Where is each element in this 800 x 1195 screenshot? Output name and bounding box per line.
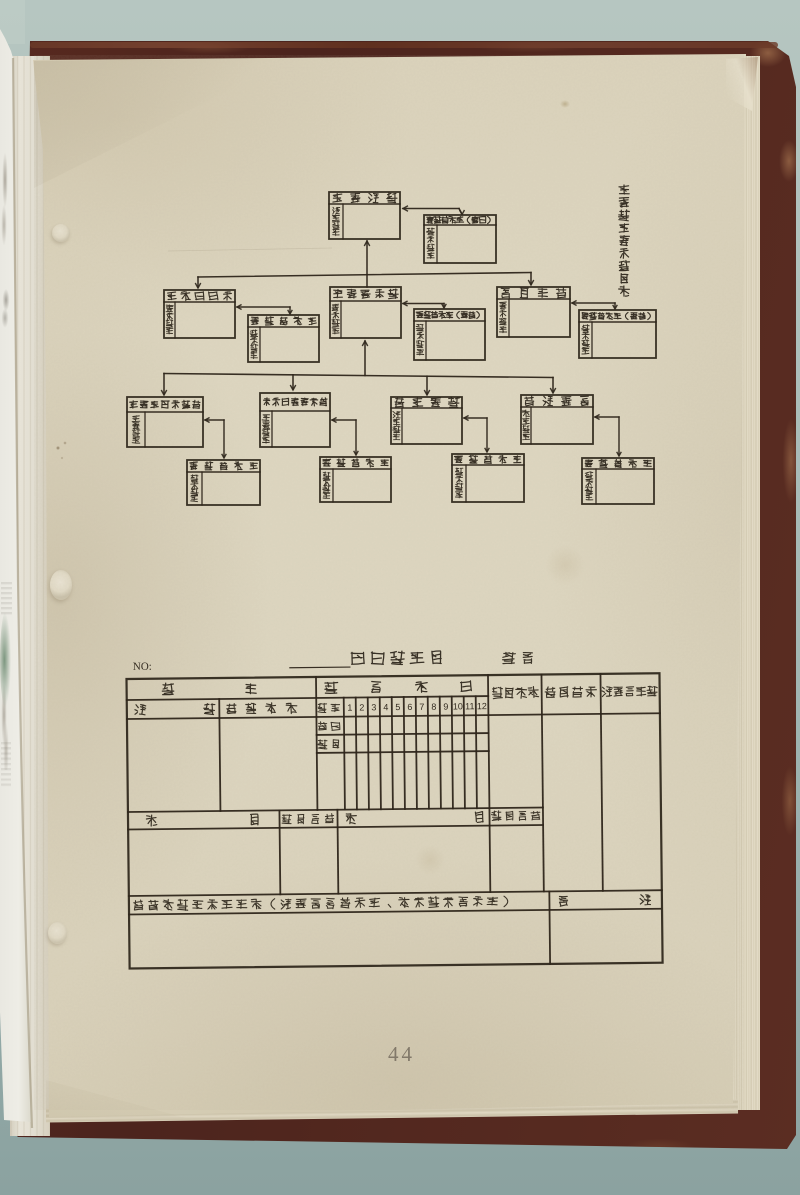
svg-text:11: 11 — [465, 701, 474, 711]
svg-text:7: 7 — [419, 702, 424, 712]
svg-text:5: 5 — [395, 702, 400, 712]
svg-text:9: 9 — [443, 702, 448, 712]
svg-text:6: 6 — [407, 702, 412, 712]
svg-text:1: 1 — [347, 703, 352, 713]
svg-text:12: 12 — [477, 701, 487, 711]
svg-text:NO:: NO: — [133, 661, 152, 673]
svg-text:4: 4 — [383, 702, 388, 712]
svg-text:10: 10 — [453, 701, 463, 711]
svg-text:44: 44 — [388, 1042, 415, 1066]
svg-text:2: 2 — [359, 702, 364, 712]
svg-text:8: 8 — [431, 702, 436, 712]
svg-text:3: 3 — [371, 702, 376, 712]
